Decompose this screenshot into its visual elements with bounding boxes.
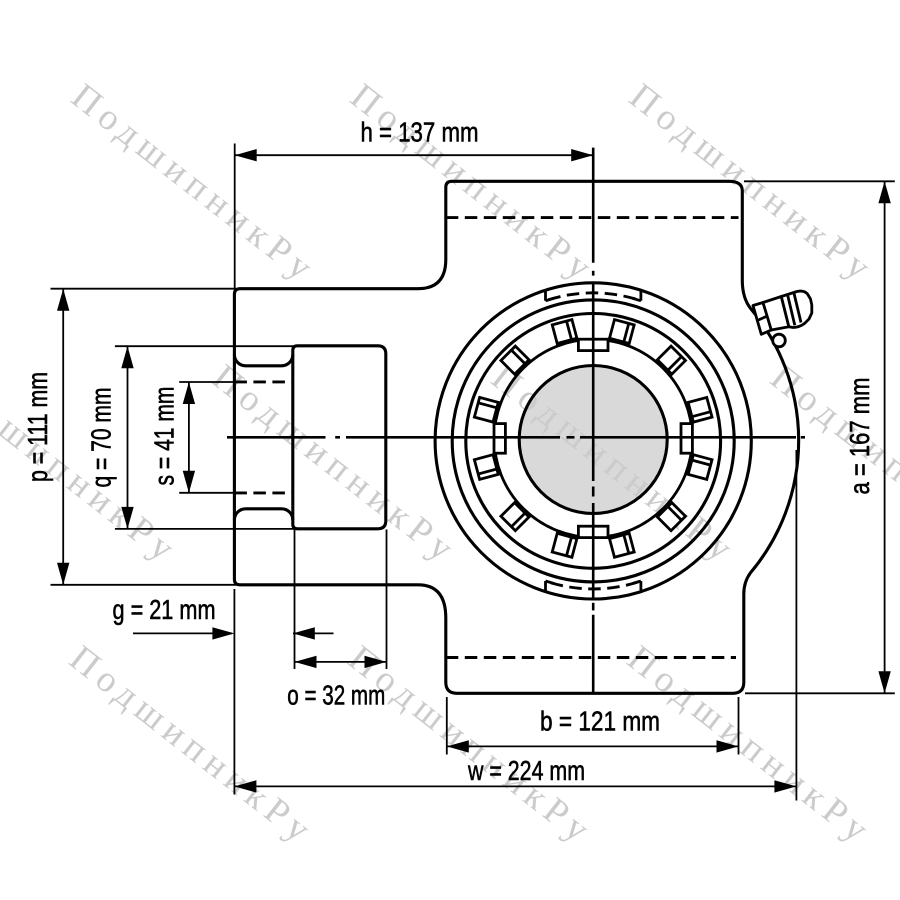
- svg-text:b = 121 mm: b = 121 mm: [540, 706, 660, 737]
- svg-text:h = 137 mm: h = 137 mm: [361, 117, 479, 148]
- svg-text:w = 224 mm: w = 224 mm: [467, 755, 585, 786]
- svg-text:a = 167 mm: a = 167 mm: [844, 378, 875, 495]
- svg-text:p = 111 mm: p = 111 mm: [22, 372, 53, 482]
- svg-text:s = 41 mm: s = 41 mm: [149, 387, 180, 486]
- svg-text:g = 21 mm: g = 21 mm: [113, 594, 216, 625]
- svg-text:q = 70 mm: q = 70 mm: [86, 388, 117, 488]
- svg-text:o = 32 mm: o = 32 mm: [287, 680, 385, 711]
